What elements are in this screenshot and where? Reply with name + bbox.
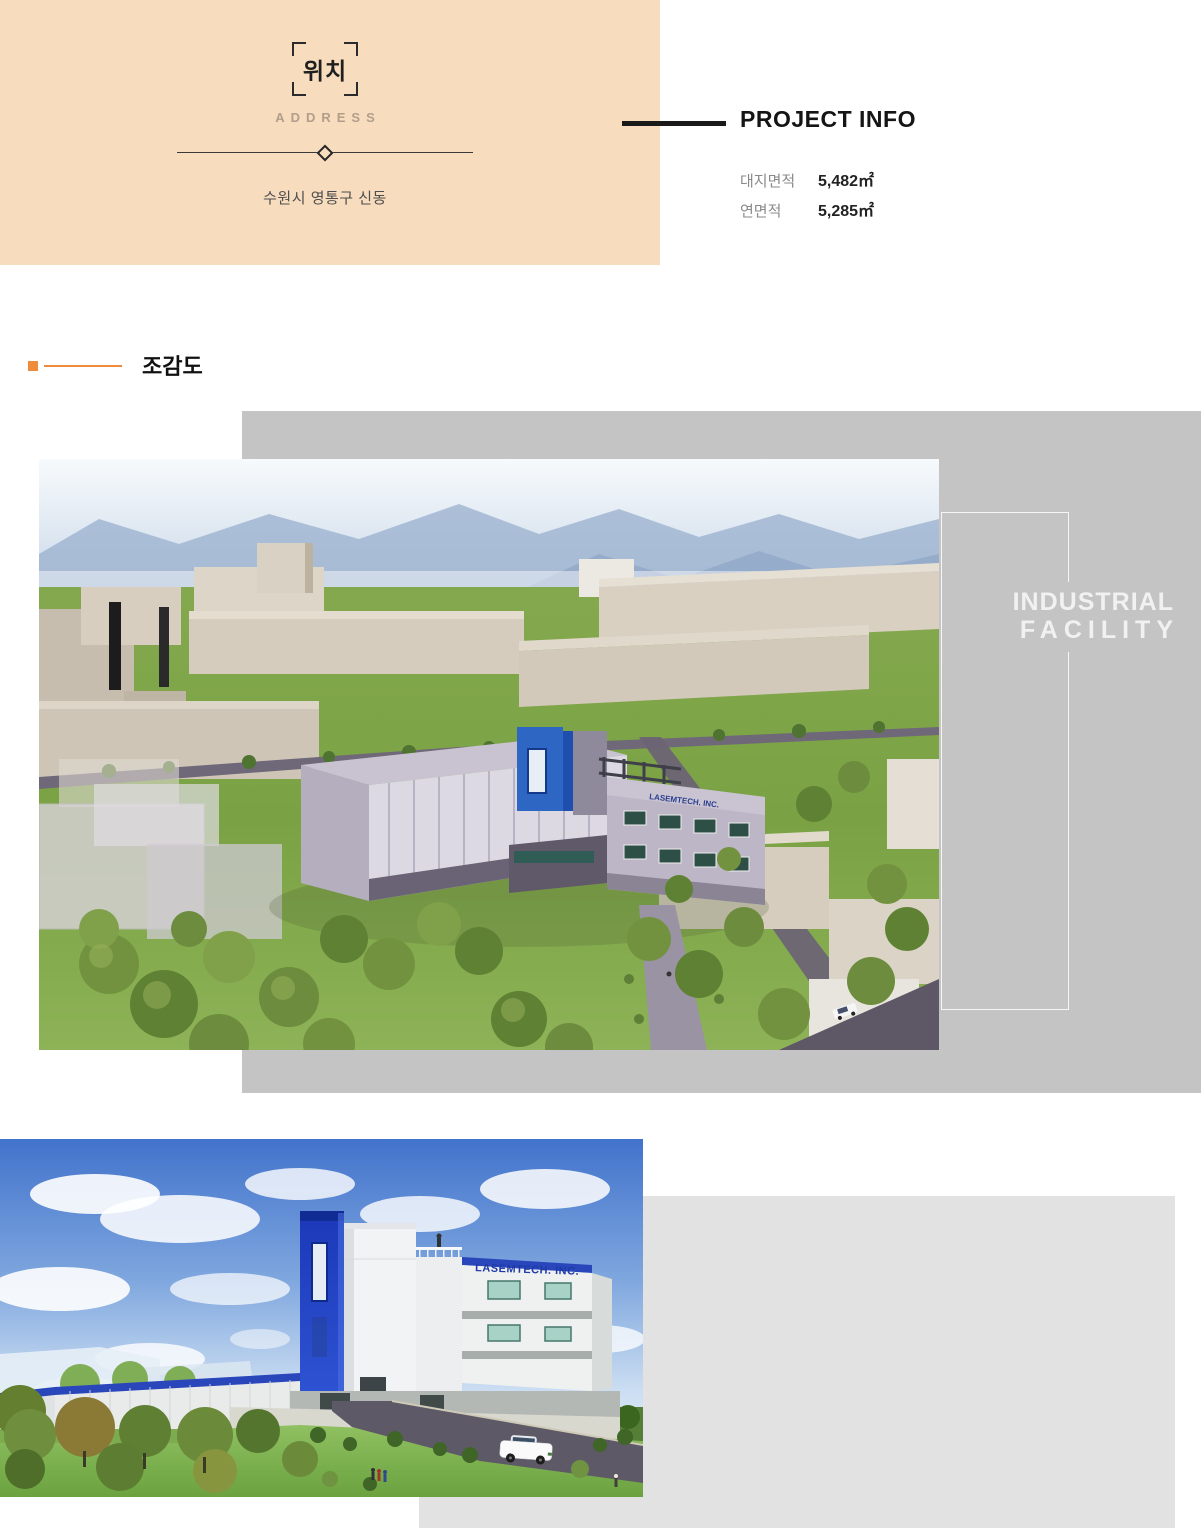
diamond-icon (317, 144, 334, 161)
section-bullet-icon (28, 361, 38, 371)
location-subtitle: ADDRESS (269, 110, 381, 125)
street-rendering-art: LASEMTECH. INC. (0, 1139, 643, 1497)
project-info-rows: 대지면적 5,482㎡ 연면적 5,285㎡ (740, 167, 874, 227)
aerial-rendering-art: LASEMTECH. INC. (39, 459, 939, 1050)
project-info-title: PROJECT INFO (740, 106, 916, 133)
industrial-text: INDUSTRIAL (1013, 588, 1174, 616)
bracket-corner-icon (344, 82, 358, 96)
floor-area-label: 연면적 (740, 200, 818, 221)
page: 위치 ADDRESS 수원시 영통구 신동 PROJECT INFO 대지면적 … (0, 0, 1201, 1530)
site-area-value: 5,482㎡ (818, 167, 874, 191)
location-address: 수원시 영통구 신동 (263, 187, 387, 208)
site-area-label: 대지면적 (740, 170, 818, 191)
bracket-corner-icon (292, 42, 306, 56)
street-rendering-image: LASEMTECH. INC. (0, 1139, 643, 1497)
project-info-row: 연면적 5,285㎡ (740, 197, 874, 227)
location-title: 위치 (303, 52, 347, 86)
floor-area-value: 5,285㎡ (818, 197, 874, 221)
bracket-corner-icon (344, 42, 358, 56)
industrial-facility-caption: INDUSTRIAL FACILITY (995, 582, 1173, 652)
location-card-inner: 위치 ADDRESS 수원시 영통구 신동 (0, 0, 650, 265)
location-title-frame: 위치 (294, 44, 356, 94)
project-info-row: 대지면적 5,482㎡ (740, 167, 874, 197)
aerial-rendering-image: LASEMTECH. INC. (39, 459, 939, 1050)
bracket-corner-icon (292, 82, 306, 96)
section-title: 조감도 (142, 349, 203, 381)
divider-line (177, 152, 473, 153)
location-card: 위치 ADDRESS 수원시 영통구 신동 (0, 0, 660, 265)
facility-text: FACILITY (1013, 616, 1179, 644)
project-info-accent-bar (622, 121, 726, 126)
section-accent-line (44, 365, 122, 367)
